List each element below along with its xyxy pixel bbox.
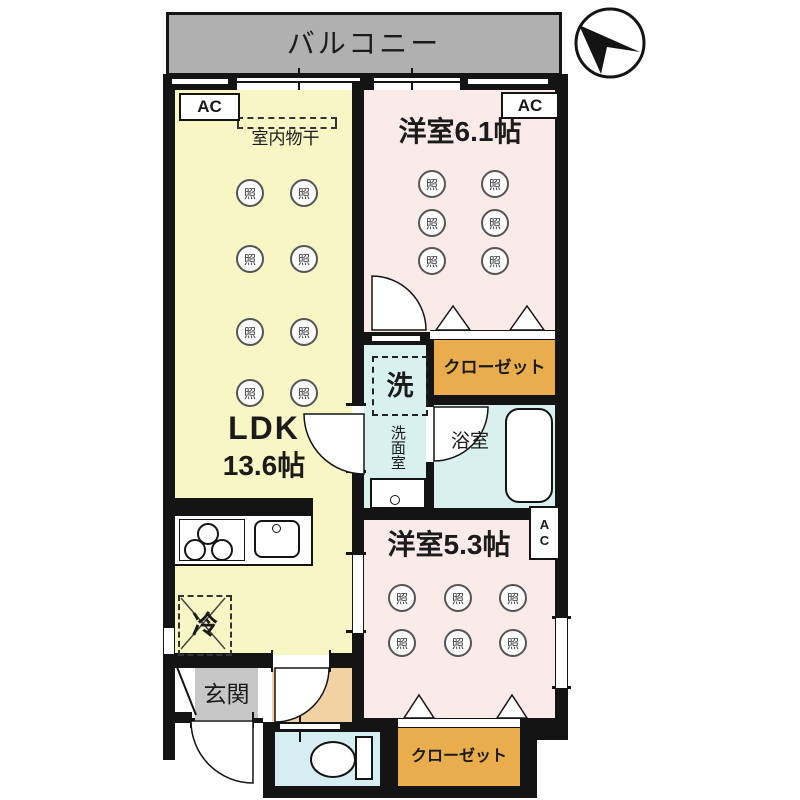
washer-box: 洗: [372, 356, 428, 416]
light-symbol: 照: [236, 245, 264, 273]
light-symbol: 照: [418, 247, 446, 275]
ac-label: AC: [537, 517, 552, 549]
light-symbol: 照: [290, 245, 318, 273]
light-symbol: 照: [236, 179, 264, 207]
light-symbol: 照: [236, 379, 264, 407]
folding-door-triangle: [436, 306, 470, 330]
ac-unit-bedroom2: AC: [529, 506, 560, 560]
light-symbol: 照: [418, 170, 446, 198]
closet2-label: クローゼット: [398, 728, 520, 786]
toilet-bowl: [310, 741, 356, 778]
ac-unit-ldk: AC: [179, 93, 240, 121]
door-arc-hallway: [275, 668, 329, 722]
light-symbol: 照: [481, 247, 509, 275]
balcony-label: バルコニー: [166, 24, 562, 64]
bathroom-label: 浴室: [434, 428, 506, 456]
fridge-label: 冷: [192, 612, 218, 639]
bathtub: [505, 408, 553, 503]
light-symbol: 照: [290, 179, 318, 207]
washbasin: [370, 478, 426, 509]
light-symbol: 照: [444, 584, 472, 612]
folding-door-triangle: [510, 306, 544, 330]
light-symbol: 照: [499, 584, 527, 612]
light-symbol: 照: [481, 170, 509, 198]
closet1-label: クローゼット: [434, 340, 555, 395]
door-arc-bedroom1: [372, 276, 426, 330]
light-symbol: 照: [499, 629, 527, 657]
ac-label: AC: [197, 97, 222, 117]
light-symbol: 照: [388, 584, 416, 612]
washer-label: 洗: [387, 372, 414, 400]
light-symbol: 照: [388, 629, 416, 657]
light-symbol: 照: [418, 209, 446, 237]
entrance-label: 玄関: [195, 668, 258, 720]
light-symbol: 照: [481, 209, 509, 237]
light-symbol: 照: [290, 318, 318, 346]
stove-burner: [184, 539, 206, 561]
floor-plan: 冷 洗 AC AC AC バルコニー 洋室6.1帖 LDK 13.6帖 洋室5.…: [0, 0, 800, 800]
ac-label: AC: [518, 96, 543, 116]
washroom-label: 洗面室: [384, 412, 410, 482]
folding-door-triangle: [404, 695, 434, 718]
fridge-box: 冷: [178, 595, 232, 656]
light-symbol: 照: [444, 629, 472, 657]
faucet: [272, 524, 281, 533]
ldk-name: LDK: [175, 410, 353, 448]
light-symbol: 照: [290, 379, 318, 407]
front-door-leaf: [177, 667, 196, 715]
stove-burner: [211, 539, 233, 561]
toilet-tank: [355, 736, 373, 780]
light-symbol: 照: [236, 318, 264, 346]
ac-unit-bedroom1: AC: [501, 92, 559, 119]
drying-label: 室内物干: [228, 128, 343, 150]
door-arc-entrance: [191, 721, 253, 783]
bedroom2-label: 洋室5.3帖: [360, 526, 538, 564]
ldk-size: 13.6帖: [175, 448, 353, 484]
folding-door-triangle: [497, 695, 527, 718]
washbasin-drain: [390, 495, 400, 505]
